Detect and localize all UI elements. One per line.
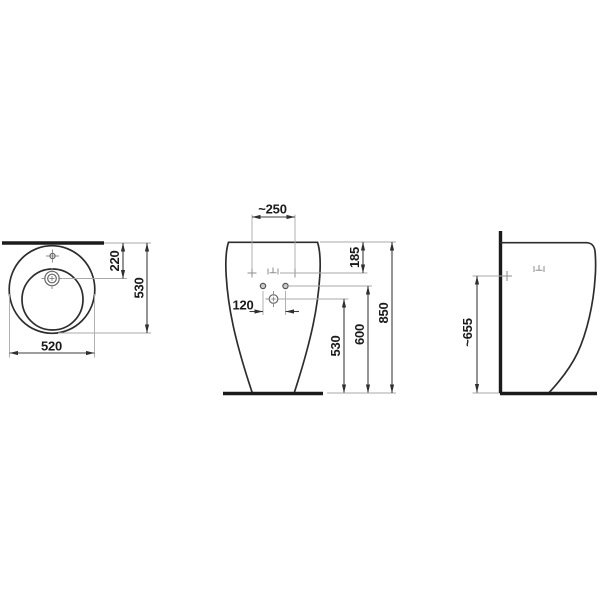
side-overflow-glyph xyxy=(534,265,544,272)
arrowhead-down xyxy=(390,385,394,394)
dim-label-520: 520 xyxy=(41,339,62,354)
dim-label-600: 600 xyxy=(352,324,367,345)
arrowhead-right xyxy=(287,215,296,219)
plan-view: 220 530 520 xyxy=(2,243,151,358)
front-overflow-symbol xyxy=(248,268,300,278)
arrowhead-down xyxy=(475,384,479,393)
plan-dim-overall-depth: 530 xyxy=(58,243,151,333)
arrowhead-up xyxy=(121,243,125,252)
arrowhead-up xyxy=(145,243,149,252)
arrowhead-up xyxy=(390,242,394,251)
arrowhead-down xyxy=(342,385,346,394)
plan-tap-hole xyxy=(46,250,59,263)
drawing-canvas: 220 530 520 xyxy=(0,0,600,600)
tap-hole-center-mark xyxy=(46,250,59,263)
front-dim-hole-spacing: 120 xyxy=(232,291,299,315)
side-dim-fixing-height: ~655 xyxy=(460,276,503,393)
plan-drain xyxy=(42,268,63,289)
arrowhead-up xyxy=(366,286,370,295)
technical-drawing-svg: 220 530 520 xyxy=(0,0,600,600)
rim-ref-cross-left xyxy=(248,269,257,278)
front-dim-supply-height: 530 xyxy=(279,299,349,393)
dim-label-530-plan: 530 xyxy=(132,277,147,298)
arrowhead-up xyxy=(475,276,479,285)
arrowhead-left xyxy=(286,309,295,313)
dim-label-530-front: 530 xyxy=(328,335,343,356)
arrowhead-up xyxy=(342,299,346,308)
front-view: ~250 185 120 530 xyxy=(223,202,396,394)
arrowhead-right xyxy=(86,351,95,355)
front-dim-overflow-drop: 185 xyxy=(280,242,396,273)
dim-label-655: ~655 xyxy=(460,318,475,346)
arrowhead-right xyxy=(255,309,264,313)
dim-label-250: ~250 xyxy=(258,202,286,217)
side-basin-profile xyxy=(501,243,596,393)
fixing-hole-right xyxy=(283,283,288,288)
plan-dim-drain-offset: 220 xyxy=(63,243,151,279)
dim-label-220: 220 xyxy=(107,250,122,271)
overflow-glyph xyxy=(268,268,278,275)
arrowhead-down xyxy=(145,325,149,334)
arrowhead-down xyxy=(366,385,370,394)
wall-fixing-cross xyxy=(502,271,512,281)
front-basin-outline xyxy=(226,242,320,392)
front-dim-rim-width: ~250 xyxy=(252,202,295,269)
dim-label-185: 185 xyxy=(347,247,362,268)
dim-label-850: 850 xyxy=(376,302,391,323)
dim-label-120: 120 xyxy=(232,298,253,313)
fixing-hole-left xyxy=(260,283,265,288)
side-view: ~655 xyxy=(460,231,597,394)
drain-center-mark xyxy=(42,268,63,289)
arrowhead-left xyxy=(10,351,19,355)
